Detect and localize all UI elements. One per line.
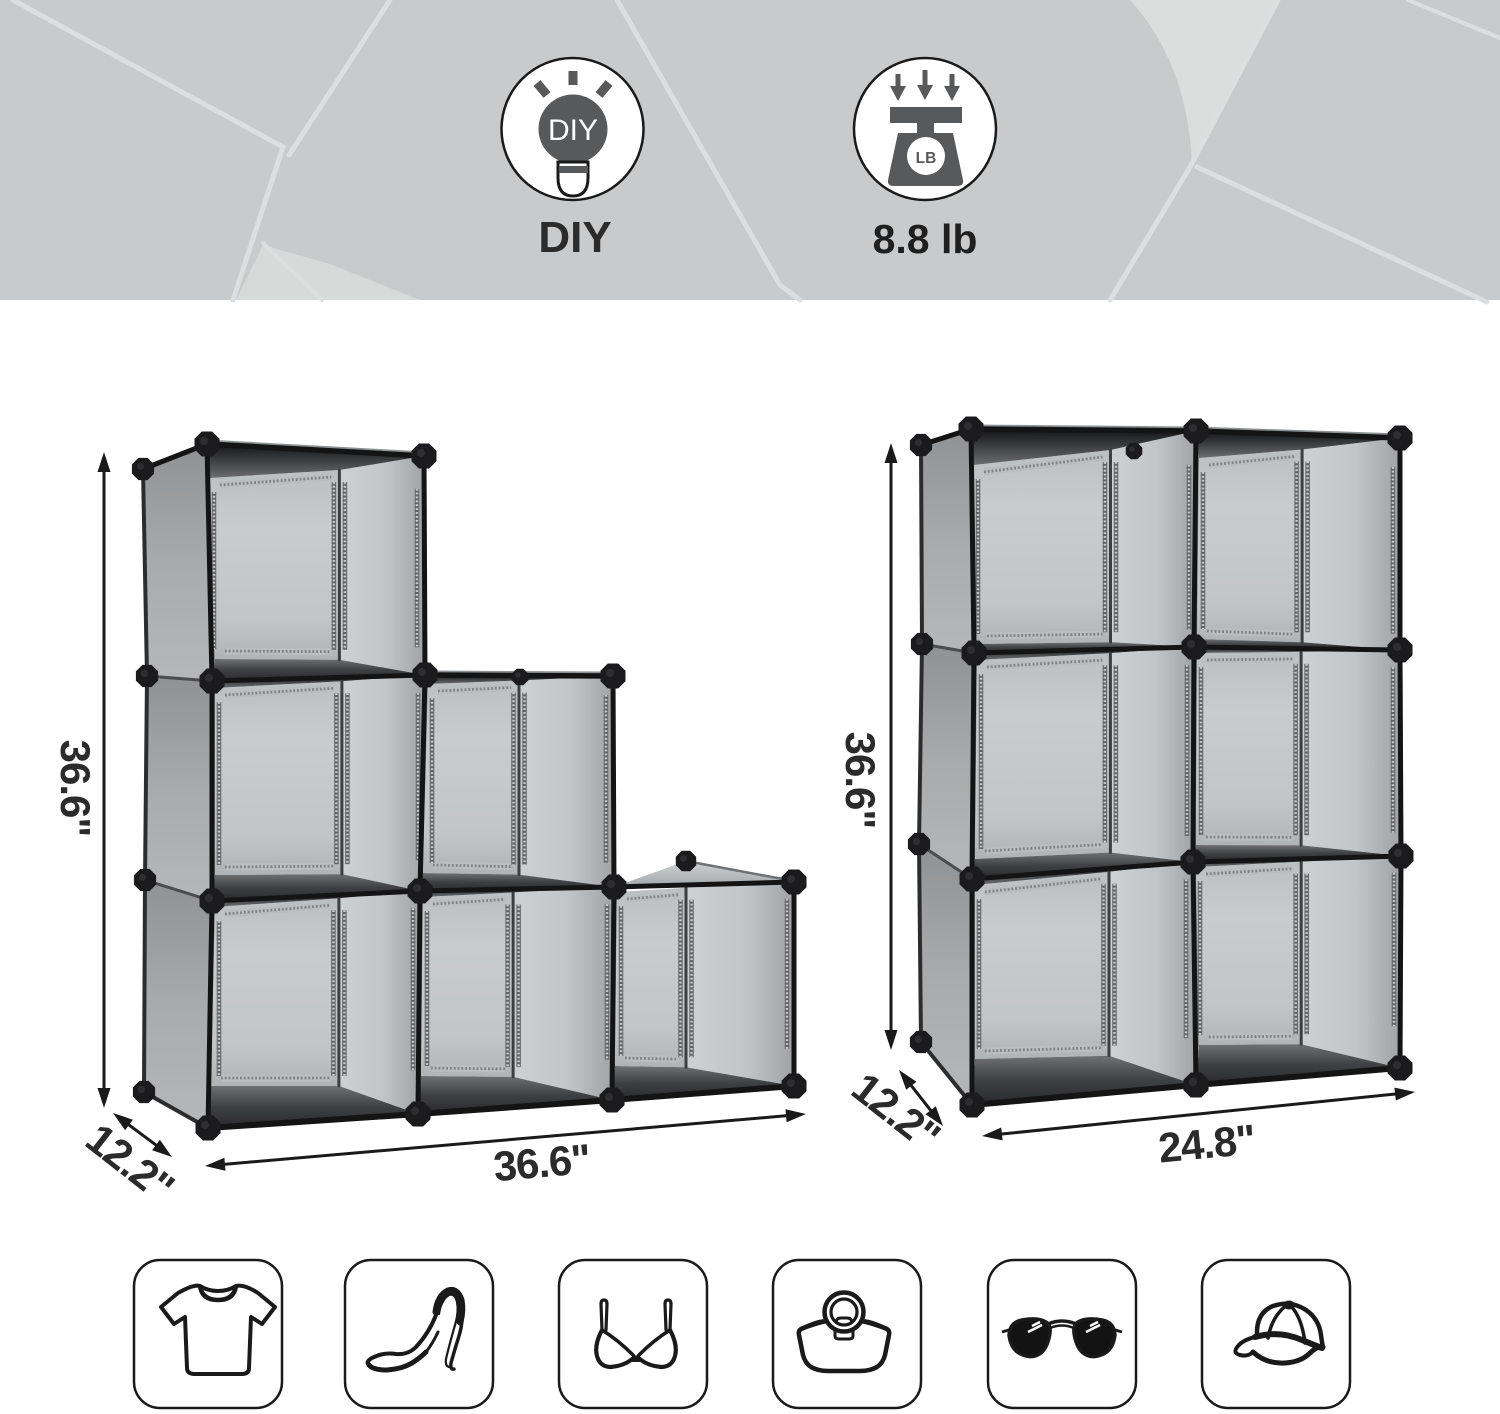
svg-text:12.2": 12.2" <box>77 1114 182 1211</box>
svg-text:DIY: DIY <box>538 213 611 262</box>
svg-text:12.2": 12.2" <box>843 1063 948 1160</box>
svg-text:36.6": 36.6" <box>837 732 884 829</box>
svg-text:8.8 lb: 8.8 lb <box>873 216 978 262</box>
svg-text:LB: LB <box>916 150 937 167</box>
svg-text:DIY: DIY <box>548 114 598 147</box>
svg-text:24.8": 24.8" <box>1156 1116 1257 1172</box>
svg-text:36.6": 36.6" <box>492 1135 592 1190</box>
svg-text:36.6": 36.6" <box>52 740 99 837</box>
